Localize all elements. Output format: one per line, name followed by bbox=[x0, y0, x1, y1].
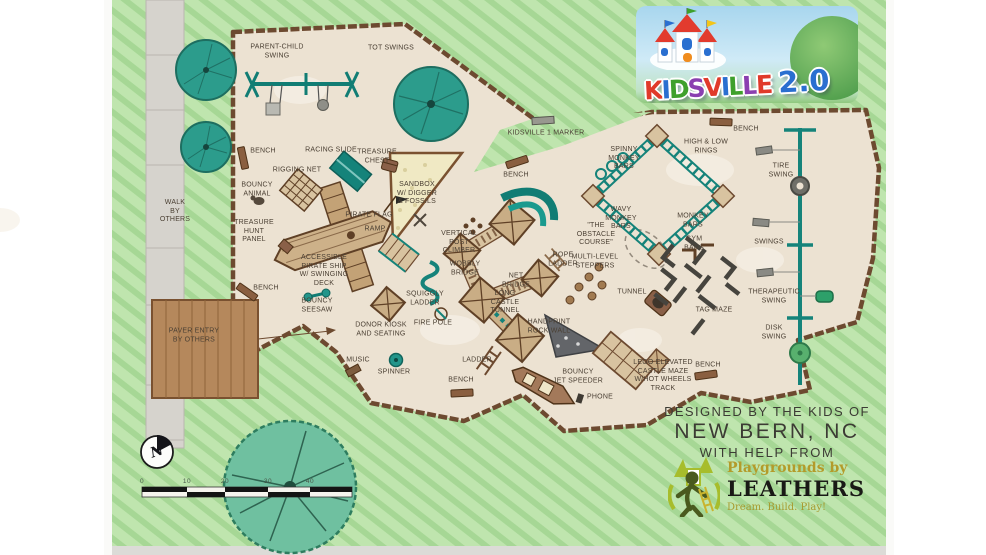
label-disk-swing: DISK SWING bbox=[762, 324, 787, 341]
kidsville-logo: KIDSVILLE2.0 bbox=[636, 6, 858, 103]
site-plan-image: PARENT-CHILD SWING TOT SWINGS BENCH RACI… bbox=[0, 0, 986, 555]
label-lego-castle-maze: LEGO ELEVATED CASTLE MAZE W/HOT WHEELS T… bbox=[633, 359, 693, 393]
leathers-figure-icon bbox=[668, 455, 720, 517]
fire-pole-icon bbox=[435, 308, 447, 320]
scale-tick-0: 0 bbox=[140, 478, 144, 485]
credits-line1: DESIGNED BY THE KIDS OF bbox=[627, 404, 907, 419]
label-paver-entry: PAVER ENTRY BY OTHERS bbox=[169, 327, 219, 344]
label-fire-pole: FIRE POLE bbox=[414, 320, 452, 329]
scale-tick-40: 40 bbox=[306, 478, 314, 485]
label-bouncy-seesaw: BOUNCY SEESAW bbox=[301, 297, 332, 314]
label-music: MUSIC bbox=[346, 357, 370, 366]
tire-swing-icon bbox=[791, 177, 809, 195]
paver-entry bbox=[152, 300, 258, 398]
label-bench-1: BENCH bbox=[250, 148, 276, 157]
label-spinny-monkey-bars: SPINNY MONKEY BARS bbox=[608, 146, 640, 172]
label-bouncy-animal: BOUNCY ANIMAL bbox=[241, 181, 272, 198]
label-donor-kiosk: DONOR KIOSK AND SEATING bbox=[355, 321, 407, 338]
spinner-icon bbox=[390, 354, 403, 367]
label-multi-level-steppers: MULTI-LEVEL STEPPERS bbox=[572, 253, 619, 270]
label-sandbox: SANDBOX W/ DIGGER & FOSSILS bbox=[397, 181, 437, 207]
label-ramp: RAMP bbox=[364, 226, 385, 235]
leathers-brand: LEATHERS bbox=[727, 476, 865, 501]
label-therapeutic-swing: THERAPEUTIC SWING bbox=[748, 288, 800, 305]
label-swings: SWINGS bbox=[754, 239, 784, 248]
scale-tick-20: 20 bbox=[221, 478, 229, 485]
label-spinner: SPINNER bbox=[378, 369, 411, 378]
logo-letter: K bbox=[643, 76, 662, 103]
tree bbox=[176, 40, 236, 100]
label-pirate-flag: PIRATE FLAG bbox=[345, 212, 392, 221]
label-handprint-rock-wall: HANDPRINT ROCK WALL bbox=[528, 318, 571, 335]
label-vertical-post-climber: VERTICAL POST CLIMBER bbox=[441, 230, 477, 256]
logo-letter: E bbox=[755, 70, 772, 100]
tree bbox=[181, 122, 231, 172]
label-kidsville-marker: KIDSVILLE 1 MARKER bbox=[508, 130, 585, 139]
label-bench-2: BENCH bbox=[253, 285, 279, 294]
label-net-bridge: NET BRIDGE bbox=[502, 272, 530, 289]
tree bbox=[394, 67, 468, 141]
label-tunnel: TUNNEL bbox=[617, 289, 646, 298]
castle-icon bbox=[646, 8, 730, 70]
logo-letter: V bbox=[703, 73, 722, 103]
scale-bar bbox=[142, 487, 352, 497]
label-racing-slide: RACING SLIDE bbox=[305, 147, 357, 156]
label-bouncy-jet-speeder: BOUNCY JET SPEEDER bbox=[553, 368, 603, 385]
leathers-brand-top: Playgrounds by bbox=[727, 460, 865, 476]
label-wobbly-bridge: WOBBLY BRIDGE bbox=[450, 260, 481, 277]
logo-version: 2.0 bbox=[777, 63, 830, 100]
scale-tick-30: 30 bbox=[264, 478, 272, 485]
leathers-logo: Playgrounds by LEATHERS Dream. Build. Pl… bbox=[668, 455, 865, 517]
label-treasure-hunt-panel: TREASURE HUNT PANEL bbox=[234, 219, 274, 245]
label-tire-swing: TIRE SWING bbox=[769, 162, 794, 179]
label-tot-swings: TOT SWINGS bbox=[368, 45, 414, 54]
scale-tick-10: 10 bbox=[183, 478, 191, 485]
label-long-castle-tunnel: LONG CASTLE TUNNEL bbox=[490, 290, 519, 316]
kidsville-marker-icon bbox=[532, 116, 554, 125]
label-gym-bars: GYM BARS bbox=[684, 235, 704, 252]
leathers-tagline: Dream. Build. Play! bbox=[727, 502, 865, 513]
label-wavy-monkey-bars: WAVY MONKEY BARS bbox=[605, 206, 637, 232]
label-bench-5: BENCH bbox=[695, 362, 721, 371]
credits-block: DESIGNED BY THE KIDS OF NEW BERN, NC WIT… bbox=[627, 404, 907, 460]
label-accessible-pirate-ship: ACCESSIBLE PIRATE SHIP W/ SWINGING DECK bbox=[300, 254, 349, 288]
label-bench-3: BENCH bbox=[503, 172, 529, 181]
credits-line2: NEW BERN, NC bbox=[627, 420, 907, 444]
label-walk-by-others: WALK BY OTHERS bbox=[160, 199, 190, 225]
label-phone: PHONE bbox=[587, 394, 613, 403]
paper-bottom-band bbox=[112, 546, 886, 555]
label-bench-4: BENCH bbox=[448, 377, 474, 386]
label-ladder: LADDER bbox=[462, 357, 492, 366]
label-treasure-chest: TREASURE CHEST bbox=[357, 148, 397, 165]
label-bench-6: BENCH bbox=[733, 126, 759, 135]
label-squiggly-ladder: SQUIGGLY LADDER bbox=[406, 290, 444, 307]
label-parent-child-swing: PARENT-CHILD SWING bbox=[250, 43, 303, 60]
label-tag-maze: TAG MAZE bbox=[696, 307, 733, 316]
label-rigging-net: RIGGING NET bbox=[273, 167, 321, 176]
label-monkey-bars: MONKEY BARS bbox=[677, 212, 709, 229]
logo-letter: L bbox=[741, 71, 756, 101]
logo-letter: D bbox=[668, 74, 688, 103]
label-high-low-rings: HIGH & LOW RINGS bbox=[684, 138, 728, 155]
disk-swing-icon bbox=[790, 343, 810, 363]
